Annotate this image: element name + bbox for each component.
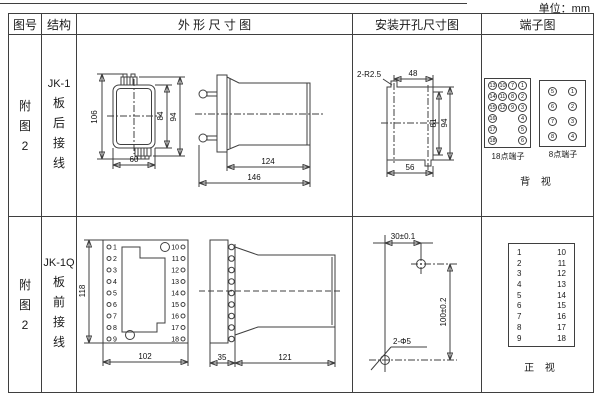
terminal-18-label: 18点端子 <box>482 151 534 162</box>
header-outline: 外 形 尺 寸 图 <box>77 14 353 35</box>
terminal-num: 8 <box>113 325 117 332</box>
jk1-outline-drawing: 106 84 <box>77 35 353 217</box>
jk1q-outline-drawing: 118 102 1 2 3 4 5 6 7 8 9 <box>77 217 353 392</box>
dim-35: 35 <box>218 353 227 362</box>
terminal-point: 7 <box>508 81 517 90</box>
cell-row2-figure: 附 图 2 <box>9 217 42 392</box>
terminal-point: 5 <box>518 125 527 134</box>
terminal-num: 1 <box>113 245 117 252</box>
jk1-front-view: 106 84 <box>90 74 185 169</box>
terminal-8-label: 8点端子 <box>537 149 589 160</box>
terminal-point: 6 <box>548 102 557 111</box>
dim-106: 106 <box>90 110 99 124</box>
jk1-side-view: 124 146 <box>195 75 323 187</box>
cell-row2-outline: 118 102 1 2 3 4 5 6 7 8 9 <box>77 217 353 392</box>
terminal-col-right: 10 11 12 13 14 15 16 17 18 <box>557 248 566 344</box>
jk1-cutout-drawing: 2-R2.5 48 81 94 <box>353 35 482 217</box>
cell-row2-install: 30±0.1 100±0.2 2-Φ5 <box>353 217 482 392</box>
terminal-num: 18 <box>171 337 179 344</box>
header-terminal: 端子图 <box>482 14 593 35</box>
dim-121: 121 <box>278 353 292 362</box>
terminal-num: 14 <box>557 291 566 302</box>
terminal-num: 2 <box>113 256 117 263</box>
sheet-top-rule <box>0 3 467 4</box>
jk1q-holes: 30±0.1 100±0.2 2-Φ5 <box>369 232 457 372</box>
terminal-col-left: 1 2 3 4 5 6 7 8 9 <box>517 248 521 344</box>
terminal-point: 10 <box>498 81 507 90</box>
dim-60: 60 <box>130 155 139 164</box>
terminal-num: 7 <box>113 314 117 321</box>
terminal-num: 4 <box>517 280 521 291</box>
dim-146: 146 <box>247 173 261 182</box>
dim-81: 81 <box>429 118 438 127</box>
model-name: JK-1Q <box>43 257 74 269</box>
terminal-num: 15 <box>557 301 566 312</box>
terminal-num: 1 <box>517 248 521 259</box>
terminal-num: 5 <box>113 291 117 298</box>
terminal-num: 6 <box>517 301 521 312</box>
cell-row1-terminal: 131071 141182 151293 164 175 186 18点端子 5… <box>482 35 593 217</box>
terminal-point: 15 <box>488 103 497 112</box>
dim-118: 118 <box>78 284 87 297</box>
back-view-label: 背 视 <box>482 173 593 188</box>
terminal-num: 14 <box>171 291 179 298</box>
figure-number: 附 图 2 <box>19 275 31 335</box>
terminal-num: 13 <box>171 279 179 286</box>
model-name: JK-1 <box>48 78 71 90</box>
terminal-num: 3 <box>517 269 521 280</box>
jk1q-front-view: 118 102 1 2 3 4 5 6 7 8 9 <box>78 240 188 366</box>
header-figure: 图号 <box>9 14 42 35</box>
terminal-point: 9 <box>508 103 517 112</box>
terminal-num: 5 <box>517 291 521 302</box>
dim-124: 124 <box>261 157 275 166</box>
header-structure: 结构 <box>42 14 77 35</box>
terminal-point: 8 <box>548 132 557 141</box>
terminal-num: 9 <box>113 337 117 344</box>
dim-94: 94 <box>169 112 178 121</box>
cell-row1-outline: 106 84 <box>77 35 353 217</box>
dim-94b: 94 <box>440 118 449 127</box>
terminal-point: 11 <box>498 92 507 101</box>
terminal-point: 5 <box>548 87 557 96</box>
cell-row1-figure: 附 图 2 <box>9 35 42 217</box>
jk1q-holes-drawing: 30±0.1 100±0.2 2-Φ5 <box>353 217 482 392</box>
terminal-point: 2 <box>518 92 527 101</box>
spec-table: 图号 结构 外 形 尺 寸 图 安装开孔尺寸图 端子图 附 图 2 JK-1 板… <box>8 13 594 393</box>
terminal-block-front: 1 2 3 4 5 6 7 8 9 10 11 12 13 14 15 <box>508 243 575 347</box>
mounting-hole <box>161 243 170 252</box>
terminal-point: 3 <box>518 103 527 112</box>
terminal-num: 9 <box>517 334 521 345</box>
header-install: 安装开孔尺寸图 <box>353 14 482 35</box>
dim-56: 56 <box>406 163 415 172</box>
terminal-num: 17 <box>171 325 179 332</box>
terminal-point: 6 <box>518 136 527 145</box>
cell-row2-structure: JK-1Q 板 前 接 线 <box>42 217 77 392</box>
cell-row1-install: 2-R2.5 48 81 94 <box>353 35 482 217</box>
terminal-point: 1 <box>568 87 577 96</box>
terminal-num: 10 <box>557 248 566 259</box>
terminal-num: 2 <box>517 259 521 270</box>
terminal-num: 16 <box>171 314 179 321</box>
dim-84: 84 <box>156 111 165 120</box>
terminal-point: 2 <box>568 102 577 111</box>
terminal-num: 18 <box>557 334 566 345</box>
terminal-num: 12 <box>557 269 566 280</box>
terminal-point: 12 <box>498 103 507 112</box>
cell-row1-structure: JK-1 板 后 接 线 <box>42 35 77 217</box>
terminal-num: 4 <box>113 279 117 286</box>
terminal-point: 18 <box>488 136 497 145</box>
terminal-num: 6 <box>113 302 117 309</box>
front-view-label: 正 视 <box>508 359 575 374</box>
terminal-point: 7 <box>548 117 557 126</box>
terminal-num: 3 <box>113 268 117 275</box>
jk1q-side-view: 35 121 <box>199 240 343 367</box>
mounting-type: 板 后 接 线 <box>53 93 65 173</box>
terminal-point: 1 <box>518 81 527 90</box>
terminal-point: 14 <box>488 92 497 101</box>
mounting-type: 板 前 接 线 <box>53 272 65 352</box>
terminal-num: 10 <box>171 245 179 252</box>
terminal-num: 11 <box>557 259 566 270</box>
terminal-point: 4 <box>518 114 527 123</box>
drawing-sheet: 单位：mm 图号 结构 外 形 尺 寸 图 安装开孔尺寸图 端子图 附 图 2 … <box>0 0 600 400</box>
terminal-point: 16 <box>488 114 497 123</box>
terminal-block-8: 51 62 73 84 <box>539 80 586 147</box>
callout-2-r2.5: 2-R2.5 <box>357 70 382 79</box>
terminal-num: 8 <box>517 323 521 334</box>
terminal-block-18: 131071 141182 151293 164 175 186 <box>484 78 531 148</box>
dim-102: 102 <box>138 352 152 361</box>
dim-48: 48 <box>409 69 418 78</box>
dim-30: 30±0.1 <box>391 232 416 241</box>
terminal-point: 17 <box>488 125 497 134</box>
terminal-num: 12 <box>171 268 179 275</box>
terminal-num: 11 <box>172 256 179 263</box>
terminal-point: 4 <box>568 132 577 141</box>
terminal-num: 7 <box>517 312 521 323</box>
terminal-point: 13 <box>488 81 497 90</box>
terminal-point: 3 <box>568 117 577 126</box>
callout-2-d5: 2-Φ5 <box>393 337 411 346</box>
figure-number: 附 图 2 <box>19 96 31 156</box>
terminal-num: 15 <box>171 302 179 309</box>
terminal-num: 13 <box>557 280 566 291</box>
terminal-point: 8 <box>508 92 517 101</box>
jk1-cutout: 2-R2.5 48 81 94 <box>357 69 454 177</box>
terminal-num: 16 <box>557 312 566 323</box>
terminal-num: 17 <box>557 323 566 334</box>
dim-100: 100±0.2 <box>439 297 448 326</box>
cell-row2-terminal: 1 2 3 4 5 6 7 8 9 10 11 12 13 14 15 <box>482 217 593 392</box>
